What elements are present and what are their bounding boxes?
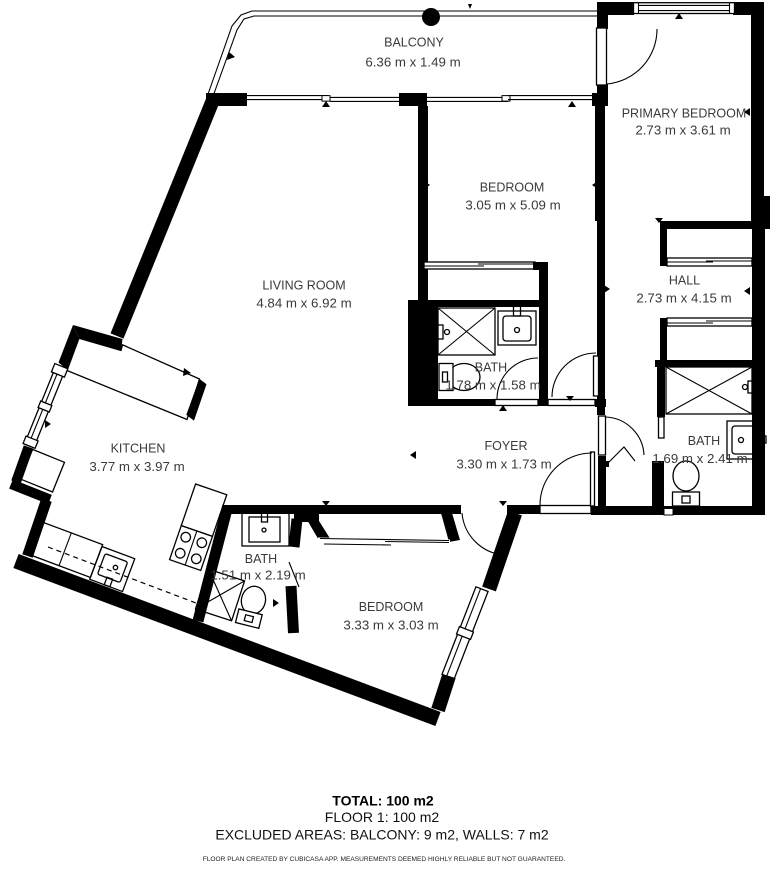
- svg-text:HALL: HALL: [669, 274, 700, 288]
- svg-text:PRIMARY BEDROOM: PRIMARY BEDROOM: [622, 107, 747, 121]
- svg-text:BATH: BATH: [245, 552, 277, 566]
- svg-text:3.30 m x 1.73 m: 3.30 m x 1.73 m: [456, 457, 551, 472]
- svg-text:2.73 m x 4.15 m: 2.73 m x 4.15 m: [636, 291, 731, 306]
- svg-text:EXCLUDED AREAS: BALCONY: 9 m2,: EXCLUDED AREAS: BALCONY: 9 m2, WALLS: 7 …: [215, 827, 548, 843]
- svg-text:BATH: BATH: [688, 434, 720, 448]
- svg-text:BEDROOM: BEDROOM: [359, 600, 424, 614]
- svg-text:1.69 m x 2.41 m: 1.69 m x 2.41 m: [652, 451, 747, 466]
- svg-text:TOTAL: 100 m2: TOTAL: 100 m2: [332, 793, 434, 809]
- svg-text:KITCHEN: KITCHEN: [111, 442, 166, 456]
- svg-text:FLOOR PLAN CREATED BY CUBICASA: FLOOR PLAN CREATED BY CUBICASA APP. MEAS…: [203, 856, 566, 863]
- svg-text:3.33 m x 3.03 m: 3.33 m x 3.03 m: [343, 618, 438, 633]
- svg-text:BEDROOM: BEDROOM: [480, 181, 545, 195]
- svg-text:3.05 m x 5.09 m: 3.05 m x 5.09 m: [465, 198, 560, 213]
- svg-text:BALCONY: BALCONY: [384, 36, 444, 50]
- svg-text:FOYER: FOYER: [484, 439, 527, 453]
- svg-text:LIVING ROOM: LIVING ROOM: [262, 279, 345, 293]
- svg-text:1.51 m x 2.19 m: 1.51 m x 2.19 m: [210, 568, 305, 583]
- svg-text:2.73 m x 3.61 m: 2.73 m x 3.61 m: [635, 123, 730, 138]
- svg-text:1.78 m x 1.58 m: 1.78 m x 1.58 m: [445, 378, 540, 393]
- svg-text:6.36 m x 1.49 m: 6.36 m x 1.49 m: [365, 55, 460, 70]
- svg-text:FLOOR 1: 100 m2: FLOOR 1: 100 m2: [325, 809, 440, 825]
- svg-text:3.77 m x 3.97 m: 3.77 m x 3.97 m: [89, 459, 184, 474]
- svg-text:BATH: BATH: [475, 361, 507, 375]
- svg-text:4.84 m x 6.92 m: 4.84 m x 6.92 m: [256, 296, 351, 311]
